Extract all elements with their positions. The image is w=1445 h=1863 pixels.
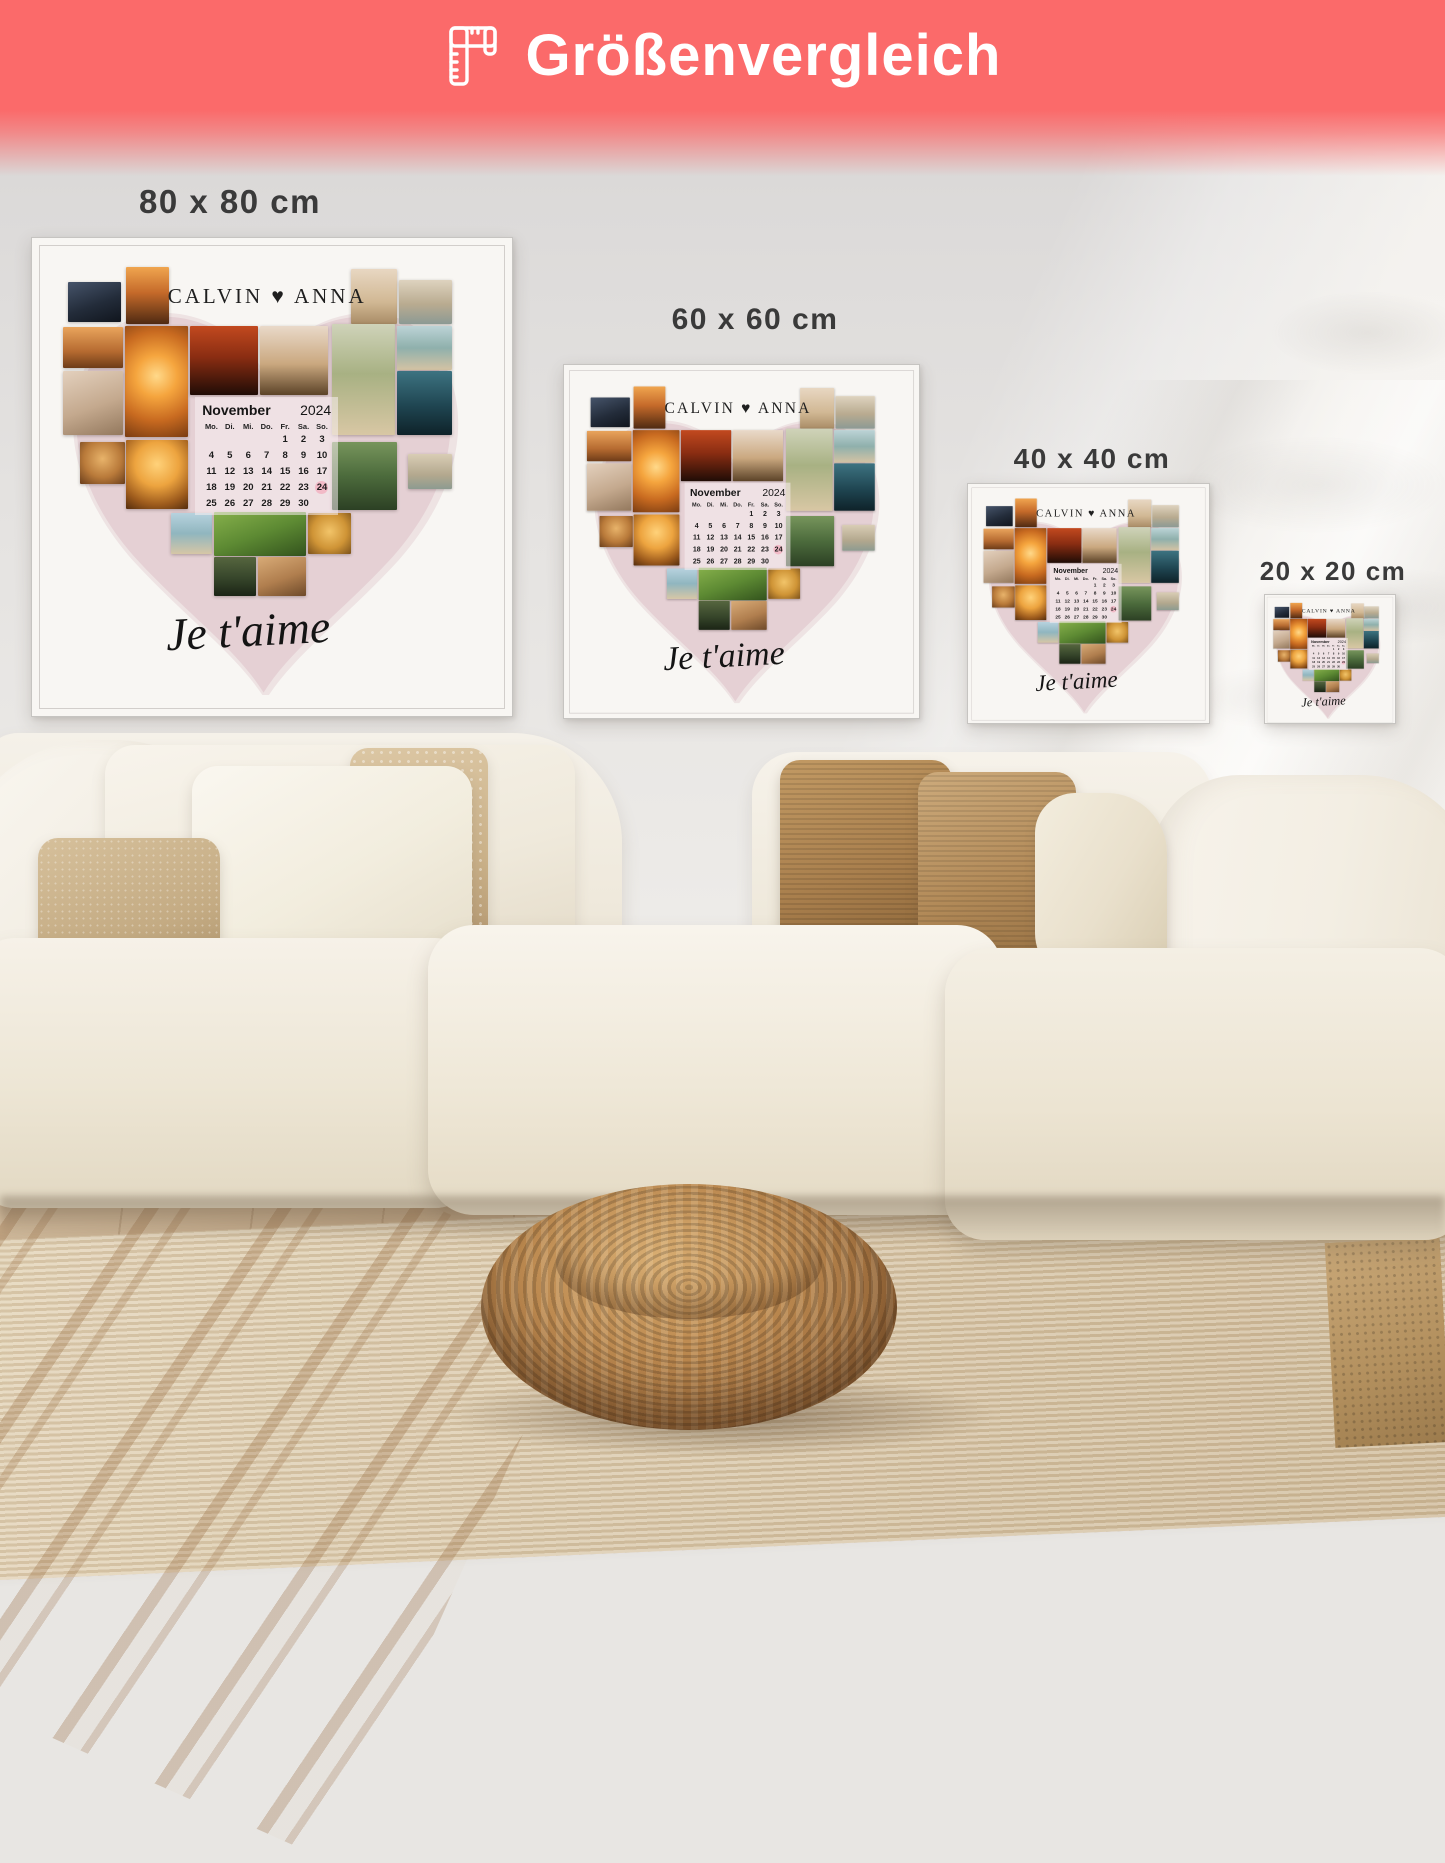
day-cell: 22 [1090, 606, 1099, 613]
poster-photo-smiling-hug-couple [731, 601, 767, 630]
day-cell: 29 [1090, 614, 1099, 621]
day-cell: 26 [704, 557, 718, 567]
poster-caption-script: Je t'aime [1035, 665, 1119, 696]
day-cell: 8 [1090, 590, 1099, 597]
day-cell: 12 [704, 533, 718, 543]
day-cell: 25 [202, 497, 220, 510]
highlight-circle: 24 [315, 481, 328, 494]
poster-photo-pinky-promise-hands [308, 513, 351, 554]
weekday-cell: Mi. [1072, 576, 1081, 581]
weekday-cell: Mo. [1053, 576, 1062, 581]
day-cell [202, 433, 220, 446]
day-cell: 26 [1063, 614, 1072, 621]
poster-photo-wedding-walk-arch [332, 442, 397, 511]
day-cell: 7 [1081, 590, 1090, 597]
day-cell: 2 [1100, 582, 1109, 589]
poster-photo-teal-evening-couple [834, 464, 874, 511]
poster-photo-party-cheers [1278, 650, 1290, 661]
day-cell [313, 497, 331, 510]
poster-photo-beach-couple-sea [397, 326, 452, 370]
poster-calendar: November2024Mo.Di.Mi.Do.Fr.Sa.So.1234567… [195, 397, 338, 515]
day-cell: 10 [1341, 652, 1346, 656]
day-cell [1081, 582, 1090, 589]
poster-photo-beach-couple-walk [1152, 505, 1179, 527]
poster-couple-names: CALVIN ♥ ANNA [1036, 507, 1136, 520]
poster-photo-beach-chairs-sunset [1290, 619, 1307, 649]
poster-photo-sunset-walk [634, 387, 666, 429]
calendar-day-grid: 1234567891011121314151617181920212223242… [1311, 648, 1346, 669]
poster-photo-sunset-couple [1273, 619, 1289, 630]
calendar-header: November2024 [1053, 566, 1118, 574]
poster-calendar: November2024Mo.Di.Mi.Do.Fr.Sa.So.1234567… [1050, 564, 1122, 623]
day-cell: 13 [717, 533, 731, 543]
day-cell: 9 [294, 449, 312, 462]
poster-photo-heart-hands-sunset [126, 440, 188, 509]
poster-photo-dark-silhouette-couple [986, 506, 1013, 526]
day-cell: 13 [1072, 598, 1081, 605]
poster-photo-beach-walk-sea [1303, 670, 1314, 681]
poster-60x60: CALVIN ♥ ANNANovember2024Mo.Di.Mi.Do.Fr.… [563, 364, 920, 719]
day-cell: 11 [1053, 598, 1062, 605]
poster-couple-names: CALVIN ♥ ANNA [664, 399, 811, 418]
day-cell [239, 433, 257, 446]
poster-photo-dunes-wedding-couple [1346, 618, 1363, 648]
weekday-cell: Mo. [690, 501, 704, 508]
calendar-weekday-row: Mo.Di.Mi.Do.Fr.Sa.So. [202, 422, 331, 431]
poster-photo-pinky-promise-hands [768, 569, 800, 599]
poster-photo-dark-silhouette-couple [1275, 607, 1289, 618]
heart-collage-print: CALVIN ♥ ANNANovember2024Mo.Di.Mi.Do.Fr.… [968, 484, 1209, 724]
poster-couple-names: CALVIN ♥ ANNA [1302, 607, 1356, 614]
poster-photo-beach-walk-sea [1038, 622, 1058, 643]
poster-photo-forest-kiss [214, 557, 255, 596]
day-cell: 7 [731, 521, 745, 531]
day-cell: 14 [731, 533, 745, 543]
day-cell: 5 [1063, 590, 1072, 597]
heart-collage-print: CALVIN ♥ ANNANovember2024Mo.Di.Mi.Do.Fr.… [32, 238, 512, 716]
day-cell: 6 [717, 521, 731, 531]
size-label-20x20: 20 x 20 cm [1260, 556, 1407, 587]
poster-photo-hugging-couple [1273, 631, 1289, 648]
day-cell [690, 509, 704, 519]
poster-photo-grass-couple [699, 568, 766, 601]
size-comparison-banner: Größenvergleich [0, 0, 1445, 185]
calendar-month: November [202, 402, 270, 418]
poster-photo-sunset-couple [983, 529, 1013, 550]
day-cell: 1 [744, 509, 758, 519]
day-cell: 28 [257, 497, 275, 510]
day-cell: 25 [1053, 614, 1062, 621]
sofa-seat-cushion-left [0, 938, 475, 1208]
day-cell: 6 [239, 449, 257, 462]
day-cell: 13 [239, 465, 257, 478]
ruler-icon [444, 24, 506, 88]
poster-photo-beach-chairs-sunset [633, 430, 680, 512]
poster-photo-teal-evening-couple [1364, 631, 1379, 648]
day-cell: 1 [1090, 582, 1099, 589]
day-cell: 19 [704, 545, 718, 555]
poster-photo-sunset-walk [126, 267, 169, 324]
day-cell: 25 [690, 557, 704, 567]
poster-photo-beach-chairs-sunset [125, 326, 188, 437]
day-cell: 26 [221, 497, 239, 510]
poster-20x20: CALVIN ♥ ANNANovember2024Mo.Di.Mi.Do.Fr.… [1264, 594, 1396, 724]
poster-photo-heart-hands-sunset [1290, 650, 1307, 669]
weekday-cell: So. [313, 422, 331, 431]
poster-photo-beach-couple-sea [1364, 619, 1379, 631]
day-cell: 17 [313, 465, 331, 478]
poster-photo-heart-hands-sunset [634, 514, 680, 565]
banner-content: Größenvergleich [444, 22, 1002, 89]
day-cell: 20 [239, 481, 257, 494]
day-cell: 17 [772, 533, 786, 543]
day-cell-highlighted: 24 [1109, 606, 1118, 613]
poster-photo-pinky-promise-hands [1340, 670, 1352, 681]
weekday-cell: So. [772, 501, 786, 508]
weekday-cell: Fr. [1090, 576, 1099, 581]
heart-collage-print: CALVIN ♥ ANNANovember2024Mo.Di.Mi.Do.Fr.… [1265, 595, 1395, 724]
poster-photo-hugging-couple [587, 464, 632, 511]
day-cell-highlighted: 24 [772, 545, 786, 555]
poster-photo-red-sunset-silhouette [1308, 619, 1326, 638]
poster-photo-dunes-wedding-couple [1118, 527, 1150, 583]
poster-photo-beach-couple-walk [399, 280, 452, 324]
day-cell: 27 [1072, 614, 1081, 621]
poster-photo-grass-couple [214, 512, 305, 556]
day-cell: 12 [1063, 598, 1072, 605]
day-cell: 22 [744, 545, 758, 555]
poster-photo-grass-couple [1314, 669, 1339, 681]
day-cell: 10 [313, 449, 331, 462]
pouf-top-dimple [556, 1206, 822, 1319]
poster-photo-beach-couple-sea [1151, 528, 1178, 550]
poster-photo-smiling-hug-couple [258, 557, 306, 596]
calendar-month: November [1053, 566, 1087, 574]
poster-photo-smiling-hug-couple [1081, 644, 1105, 664]
highlight-circle: 24 [774, 545, 784, 555]
poster-photo-dark-silhouette-couple [591, 398, 630, 428]
wicker-pouf [481, 1184, 897, 1430]
poster-photo-field-couple-silhouette [1327, 619, 1345, 638]
calendar-year: 2024 [300, 402, 331, 418]
size-label-40x40: 40 x 40 cm [1014, 443, 1171, 475]
calendar-header: November2024 [690, 486, 785, 498]
poster-calendar: November2024Mo.Di.Mi.Do.Fr.Sa.So.1234567… [685, 483, 791, 570]
poster-photo-beach-couple-walk [835, 396, 874, 429]
poster-photo-teal-evening-couple [1151, 551, 1178, 583]
poster-photo-red-sunset-silhouette [1048, 528, 1082, 563]
rug-jute-border [1325, 1237, 1445, 1448]
poster-80x80: CALVIN ♥ ANNANovember2024Mo.Di.Mi.Do.Fr.… [31, 237, 513, 717]
day-cell: 12 [221, 465, 239, 478]
poster-photo-beach-couple-walk [1364, 606, 1378, 618]
day-cell: 10 [772, 521, 786, 531]
calendar-year: 2024 [1103, 566, 1119, 574]
poster-photo-party-cheers [80, 442, 125, 484]
day-cell: 16 [294, 465, 312, 478]
weekday-cell: Mo. [202, 422, 220, 431]
day-cell-highlighted: 24 [1341, 661, 1346, 665]
poster-caption-script: Je t'aime [165, 599, 332, 661]
poster-40x40: CALVIN ♥ ANNANovember2024Mo.Di.Mi.Do.Fr.… [967, 483, 1210, 724]
weekday-cell: So. [1109, 576, 1118, 581]
weekday-cell: Di. [704, 501, 718, 508]
day-cell: 29 [276, 497, 294, 510]
day-cell: 11 [202, 465, 220, 478]
day-cell: 4 [202, 449, 220, 462]
day-cell: 9 [758, 521, 772, 531]
poster-photo-heart-hands-sunset [1015, 585, 1046, 620]
day-cell: 20 [1072, 606, 1081, 613]
calendar-header: November2024 [202, 402, 331, 418]
poster-photo-beach-walk-sea [667, 569, 697, 599]
weekday-cell: Mi. [717, 501, 731, 508]
day-cell: 10 [1109, 590, 1118, 597]
day-cell: 30 [294, 497, 312, 510]
day-cell: 15 [276, 465, 294, 478]
poster-photo-red-sunset-silhouette [190, 326, 257, 395]
day-cell: 5 [704, 521, 718, 531]
poster-photo-sunset-couple [587, 431, 632, 462]
day-cell [1341, 665, 1346, 669]
day-cell [772, 557, 786, 567]
weekday-cell: Sa. [758, 501, 772, 508]
calendar-month: November [690, 486, 741, 498]
day-cell: 19 [221, 481, 239, 494]
poster-photo-wedding-walk-arch [1118, 586, 1151, 621]
poster-photo-beach-pair-small [1157, 592, 1179, 610]
poster-photo-dark-silhouette-couple [68, 282, 121, 322]
poster-photo-party-cheers [600, 516, 633, 547]
day-cell: 16 [1100, 598, 1109, 605]
day-cell: 23 [294, 481, 312, 494]
day-cell: 17 [1341, 657, 1346, 661]
day-cell: 11 [690, 533, 704, 543]
day-cell: 1 [276, 433, 294, 446]
calendar-year: 2024 [1338, 639, 1346, 643]
poster-photo-wedding-walk-arch [1346, 650, 1364, 669]
calendar-day-grid: 1234567891011121314151617181920212223242… [690, 509, 785, 566]
day-cell [717, 509, 731, 519]
highlight-circle: 24 [1342, 661, 1346, 665]
poster-photo-beach-pair-small [842, 525, 874, 551]
size-label-80x80: 80 x 80 cm [139, 183, 321, 221]
weekday-cell: Fr. [744, 501, 758, 508]
day-cell: 15 [1090, 598, 1099, 605]
day-cell: 20 [717, 545, 731, 555]
poster-photo-beach-chairs-sunset [1015, 528, 1047, 584]
poster-photo-party-cheers [992, 586, 1015, 607]
day-cell: 21 [1081, 606, 1090, 613]
poster-photo-sunset-couple [63, 327, 123, 369]
day-cell: 23 [1100, 606, 1109, 613]
day-cell: 18 [202, 481, 220, 494]
day-cell: 14 [257, 465, 275, 478]
day-cell [1072, 582, 1081, 589]
poster-photo-beach-pair-small [408, 454, 451, 489]
poster-photo-field-couple-silhouette [260, 326, 327, 395]
pillow-white-large [192, 766, 472, 964]
poster-caption-script: Je t'aime [1301, 693, 1346, 710]
day-cell [731, 509, 745, 519]
living-room-scene: Größenvergleich 80 x 80 cm 60 x 60 cm 40… [0, 0, 1445, 1445]
calendar-year: 2024 [762, 486, 785, 498]
poster-photo-sunset-walk [1290, 603, 1302, 618]
weekday-cell: Mi. [239, 422, 257, 431]
poster-photo-forest-kiss [1060, 644, 1081, 664]
weekday-cell: Do. [257, 422, 275, 431]
day-cell: 7 [257, 449, 275, 462]
weekday-cell: Do. [1081, 576, 1090, 581]
weekday-cell: Di. [1063, 576, 1072, 581]
day-cell: 3 [313, 433, 331, 446]
poster-photo-hugging-couple [983, 551, 1013, 583]
day-cell: 8 [744, 521, 758, 531]
day-cell: 3 [1109, 582, 1118, 589]
day-cell: 4 [1053, 590, 1062, 597]
day-cell: 3 [1341, 648, 1346, 652]
day-cell: 17 [1109, 598, 1118, 605]
poster-photo-dunes-wedding-couple [332, 324, 395, 435]
poster-photo-smiling-hug-couple [1326, 681, 1339, 692]
day-cell: 30 [758, 557, 772, 567]
size-label-60x60: 60 x 60 cm [672, 303, 839, 337]
day-cell: 9 [1100, 590, 1109, 597]
poster-photo-sunset-walk [1015, 499, 1037, 528]
day-cell: 19 [1063, 606, 1072, 613]
day-cell: 21 [731, 545, 745, 555]
weekday-cell: Fr. [276, 422, 294, 431]
poster-photo-hugging-couple [63, 371, 123, 435]
poster-caption-script: Je t'aime [662, 632, 786, 678]
day-cell: 29 [744, 557, 758, 567]
poster-photo-pinky-promise-hands [1106, 622, 1128, 643]
banner-title: Größenvergleich [526, 22, 1002, 89]
day-cell: 3 [772, 509, 786, 519]
calendar-day-grid: 1234567891011121314151617181920212223242… [202, 433, 331, 510]
calendar-header: November2024 [1311, 639, 1346, 643]
day-cell: 18 [690, 545, 704, 555]
day-cell: 23 [758, 545, 772, 555]
day-cell: 15 [744, 533, 758, 543]
poster-photo-field-couple-silhouette [733, 430, 783, 481]
heart-collage-print: CALVIN ♥ ANNANovember2024Mo.Di.Mi.Do.Fr.… [564, 365, 919, 719]
day-cell: 8 [276, 449, 294, 462]
highlight-circle: 24 [1110, 606, 1117, 613]
calendar-day-grid: 1234567891011121314151617181920212223242… [1053, 582, 1118, 621]
poster-photo-red-sunset-silhouette [681, 430, 731, 481]
poster-photo-wedding-walk-arch [786, 516, 834, 567]
poster-photo-forest-kiss [1314, 681, 1325, 692]
poster-calendar: November2024Mo.Di.Mi.Do.Fr.Sa.So.1234567… [1309, 638, 1348, 670]
day-cell [704, 509, 718, 519]
calendar-weekday-row: Mo.Di.Mi.Do.Fr.Sa.So. [690, 501, 785, 508]
day-cell [1109, 614, 1118, 621]
weekday-cell: Di. [221, 422, 239, 431]
day-cell [1063, 582, 1072, 589]
day-cell: 27 [717, 557, 731, 567]
weekday-cell: Sa. [294, 422, 312, 431]
poster-photo-teal-evening-couple [397, 371, 452, 435]
day-cell: 28 [731, 557, 745, 567]
day-cell: 2 [758, 509, 772, 519]
day-cell-highlighted: 24 [313, 481, 331, 494]
poster-photo-beach-couple-sea [834, 430, 874, 463]
poster-photo-beach-walk-sea [171, 513, 211, 554]
poster-photo-field-couple-silhouette [1083, 528, 1117, 563]
calendar-month: November [1311, 639, 1330, 643]
day-cell [1053, 582, 1062, 589]
day-cell: 30 [1100, 614, 1109, 621]
day-cell: 22 [276, 481, 294, 494]
day-cell: 18 [1053, 606, 1062, 613]
day-cell: 21 [257, 481, 275, 494]
day-cell: 4 [690, 521, 704, 531]
poster-photo-grass-couple [1060, 622, 1106, 644]
day-cell [221, 433, 239, 446]
poster-photo-dunes-wedding-couple [786, 429, 833, 511]
poster-couple-names: CALVIN ♥ ANNA [168, 284, 367, 309]
day-cell: 27 [239, 497, 257, 510]
poster-photo-beach-pair-small [1367, 653, 1379, 663]
day-cell: 2 [294, 433, 312, 446]
day-cell: 28 [1081, 614, 1090, 621]
weekday-cell: Do. [731, 501, 745, 508]
weekday-cell: Sa. [1100, 576, 1109, 581]
sofa-seat-cushion-center [428, 925, 1003, 1215]
day-cell: 6 [1072, 590, 1081, 597]
day-cell: 5 [221, 449, 239, 462]
calendar-weekday-row: Mo.Di.Mi.Do.Fr.Sa.So. [1053, 576, 1118, 581]
poster-photo-forest-kiss [699, 601, 730, 630]
day-cell: 14 [1081, 598, 1090, 605]
day-cell [257, 433, 275, 446]
day-cell: 16 [758, 533, 772, 543]
